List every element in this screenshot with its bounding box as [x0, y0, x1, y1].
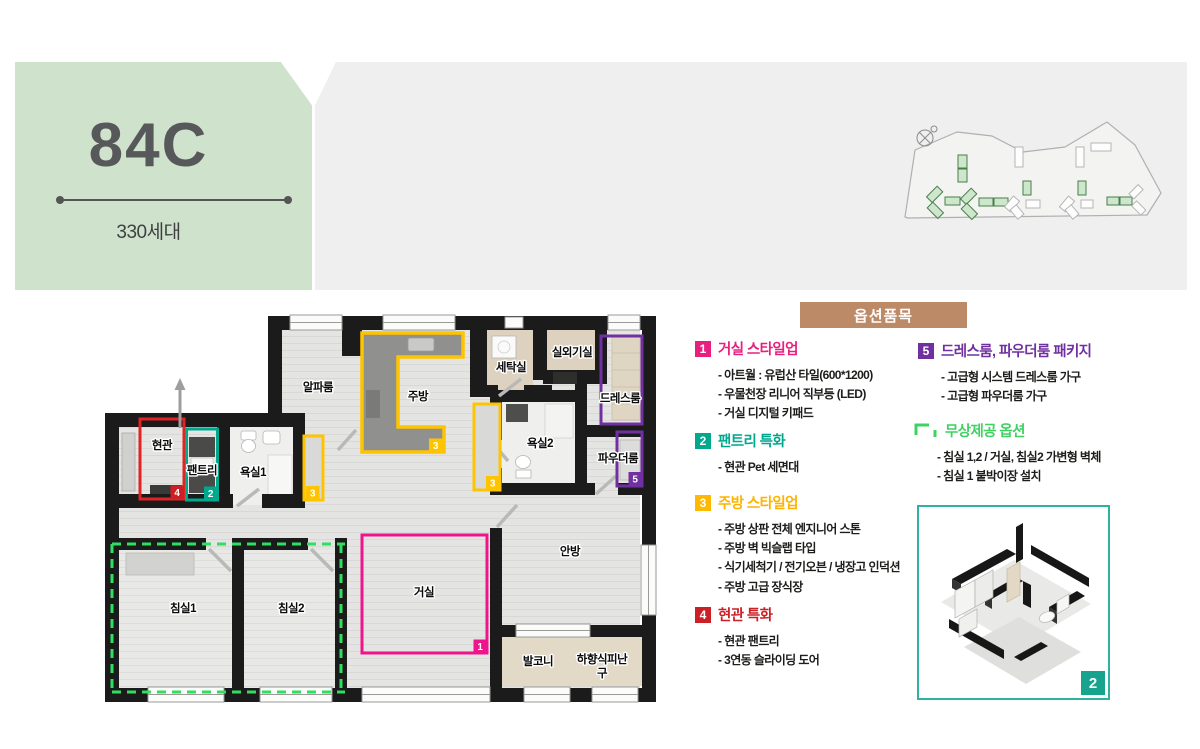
- option-item: 주방 고급 장식장: [718, 578, 913, 597]
- badge-kitchen-1: 3: [433, 441, 439, 452]
- detail-image-badge: 2: [1081, 671, 1105, 695]
- options-header: 옵션품목: [800, 302, 967, 328]
- option-item: 주방 상판 전체 엔지니어 스톤: [718, 520, 913, 539]
- badge-living: 1: [477, 642, 483, 653]
- floor-plan: 4 2 3 3 3 5 1 현관 팬트리 욕실1 알파룸 주방 세탁실 실외기실…: [95, 310, 685, 710]
- option-title-pantry: 팬트리 특화: [718, 430, 785, 451]
- options-header-label: 옵션품목: [854, 305, 913, 326]
- divider-line: [60, 199, 288, 201]
- option-item: 주방 벽 빅슬랩 타입: [718, 539, 913, 558]
- option-item: 거실 디지털 키패드: [718, 404, 910, 423]
- option-item: 침실 1,2 / 거실, 침실2 가변형 벽체: [937, 448, 1189, 467]
- dashed-wall-icon: [914, 422, 938, 439]
- option-item: 고급형 시스템 드레스룸 가구: [941, 368, 1193, 387]
- room-label-outdoor-unit: 실외기실: [552, 345, 592, 359]
- option-item: 아트월 : 유럽산 타일(600*1200): [718, 366, 910, 385]
- option-section-pantry: 2 팬트리 특화 현관 Pet 세면대: [695, 430, 910, 477]
- room-label-laundry: 세탁실: [496, 360, 526, 374]
- pantry-3d-render: [919, 507, 1108, 698]
- room-label-evac-2: 구: [597, 667, 608, 680]
- room-label-living: 거실: [414, 585, 434, 599]
- room-label-pantry: 팬트리: [187, 463, 217, 477]
- option-item: 3연동 슬라이딩 도어: [718, 651, 910, 670]
- badge-kitchen-2: 3: [310, 489, 316, 500]
- option-section-dressroom: 5 드레스룸, 파우더룸 패키지 고급형 시스템 드레스룸 가구 고급형 파우더…: [918, 340, 1193, 406]
- option-badge-entrance: 4: [695, 607, 711, 623]
- option-section-entrance: 4 현관 특화 현관 팬트리 3연동 슬라이딩 도어: [695, 604, 910, 670]
- badge-dressroom: 5: [632, 475, 638, 486]
- option-item: 우물천장 리니어 직부등 (LED): [718, 385, 910, 404]
- option-title-living: 거실 스타일업: [718, 338, 798, 359]
- option-title-free: 무상제공 옵션: [945, 420, 1025, 441]
- option-badge-kitchen: 3: [695, 495, 711, 511]
- room-label-bath1: 욕실1: [240, 465, 267, 479]
- option-title-dressroom: 드레스룸, 파우더룸 패키지: [941, 340, 1091, 361]
- room-label-dressroom: 드레스룸: [600, 391, 641, 405]
- room-label-bath2: 욕실2: [527, 436, 553, 450]
- site-plan-map: [895, 105, 1175, 270]
- site-plan-panel: [315, 62, 1187, 290]
- badge-entrance: 4: [174, 488, 180, 499]
- room-label-entrance: 현관: [152, 438, 173, 452]
- option-item: 식기세척기 / 전기오븐 / 냉장고 인덕션: [718, 558, 913, 577]
- option-badge-living: 1: [695, 341, 711, 357]
- room-label-bed2: 침실2: [278, 601, 304, 615]
- badge-pantry: 2: [208, 489, 214, 500]
- unit-type-label: 84C: [15, 110, 282, 181]
- option-item: 고급형 파우더룸 가구: [941, 387, 1193, 406]
- badge-kitchen-3: 3: [490, 479, 496, 490]
- brochure-page: 84C 330세대: [0, 0, 1200, 749]
- room-label-kitchen: 주방: [408, 389, 429, 403]
- option-section-living: 1 거실 스타일업 아트월 : 유럽산 타일(600*1200) 우물천장 리니…: [695, 338, 910, 424]
- room-label-master: 안방: [560, 544, 581, 558]
- option-title-kitchen: 주방 스타일업: [718, 492, 798, 513]
- option-section-kitchen: 3 주방 스타일업 주방 상판 전체 엔지니어 스톤 주방 벽 빅슬랩 타입 식…: [695, 492, 913, 597]
- room-label-powder: 파우더룸: [598, 451, 639, 465]
- unit-type-panel: 84C 330세대: [15, 62, 312, 290]
- option-item: 침실 1 붙박이장 설치: [937, 467, 1189, 486]
- option-section-free: 무상제공 옵션 침실 1,2 / 거실, 침실2 가변형 벽체 침실 1 붙박이…: [914, 420, 1189, 486]
- option-item: 현관 팬트리: [718, 632, 910, 651]
- room-label-evac-1: 하향식피난: [577, 652, 628, 666]
- units-count-label: 330세대: [15, 217, 282, 244]
- option-title-entrance: 현관 특화: [718, 604, 772, 625]
- room-label-bed1: 침실1: [170, 601, 197, 615]
- pantry-detail-image: 2: [917, 505, 1110, 700]
- option-badge-dressroom: 5: [918, 343, 934, 359]
- room-label-alpha: 알파룸: [303, 380, 334, 394]
- option-item: 현관 Pet 세면대: [718, 458, 910, 477]
- option-badge-pantry: 2: [695, 433, 711, 449]
- room-label-balcony: 발코니: [523, 654, 553, 668]
